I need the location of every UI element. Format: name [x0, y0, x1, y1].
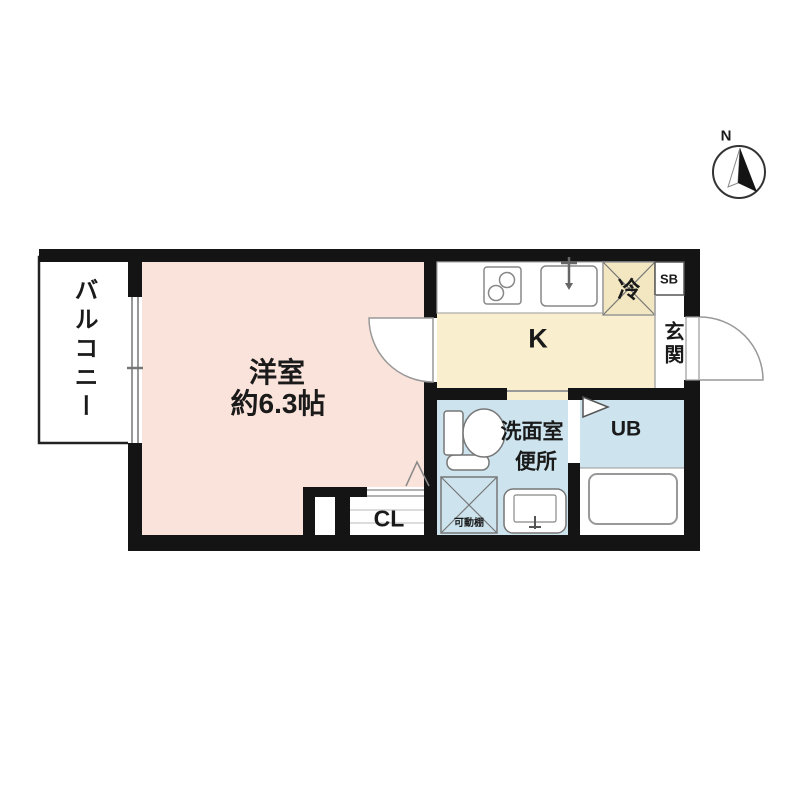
refrigerator-label: 冷 [618, 279, 641, 302]
living-room-size-label: 約6.3帖 [231, 390, 326, 418]
compass [713, 146, 765, 198]
kitchen-counter [437, 257, 603, 313]
balcony-window [127, 297, 143, 443]
wall-kitchen-washroom-left [437, 388, 507, 400]
compass-needle-icon [738, 148, 757, 192]
wall-bottom [128, 535, 700, 551]
door-leaf [686, 317, 699, 380]
toilet-bowl-icon [463, 409, 505, 457]
wall-left-upper [128, 249, 142, 297]
wall-living-kitchen-lower [424, 382, 437, 535]
unit-bath-label: UB [611, 419, 641, 440]
wall-living-kitchen-upper [424, 262, 437, 318]
window-gap [128, 297, 142, 443]
compass-north-label: N [721, 129, 732, 144]
wall-washroom-unitbath [568, 463, 580, 535]
floor-plan-drawing [0, 0, 800, 800]
bathtub-icon [589, 474, 677, 524]
toilet-tank-icon [444, 411, 463, 455]
unit-bath-fixtures [580, 468, 684, 524]
entrance-label: 玄関 [662, 321, 682, 367]
washroom-label-line1: 洗面室 [501, 422, 564, 443]
wall-closet-left [303, 487, 315, 535]
stove-burner-icon [500, 273, 515, 288]
shoe-box-label: SB [660, 273, 678, 286]
wall-left-lower [128, 443, 142, 551]
entrance-door [684, 317, 763, 380]
movable-shelf-label: 可動棚 [454, 519, 484, 529]
wall-right-lower [684, 380, 700, 551]
balcony-label: バルコニー [71, 278, 95, 423]
living-room-label: 洋室 [249, 359, 305, 387]
wall-closet-mid [335, 497, 350, 535]
kitchen-label: K [528, 326, 548, 353]
floor-plan: バルコニー 洋室 約6.3帖 K 冷 SB 玄関 洗面室 便所 可動棚 UB C… [0, 0, 800, 800]
door-swing-arc [700, 317, 763, 380]
pipe-space-void [315, 497, 335, 535]
closet-label: CL [374, 508, 405, 531]
wall-right-upper [684, 249, 700, 317]
stove-burner-icon [489, 286, 504, 301]
washroom-label-line2: 便所 [515, 452, 557, 473]
